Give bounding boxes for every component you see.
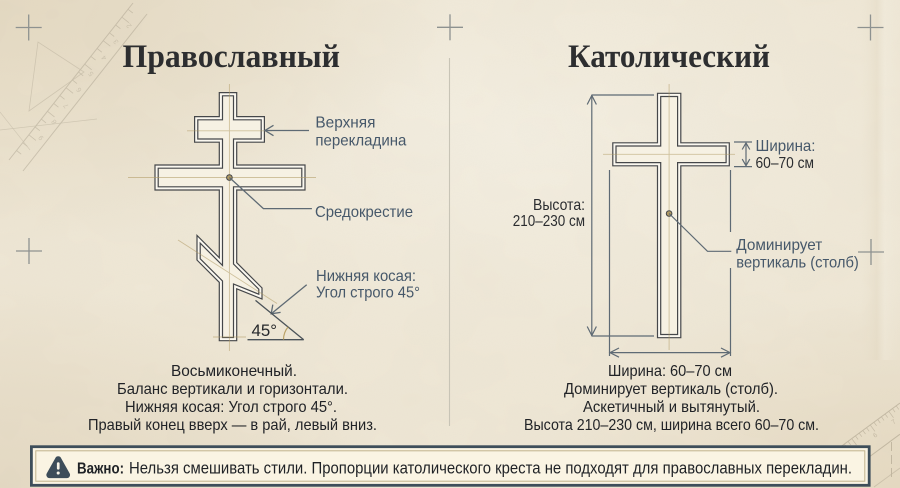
svg-text:перекладина: перекладина bbox=[315, 132, 406, 149]
svg-text:Восьмиконечный.: Восьмиконечный. bbox=[171, 363, 297, 380]
svg-text:Доминирует вертикаль (столб).: Доминирует вертикаль (столб). bbox=[564, 381, 778, 398]
svg-text:Католический: Католический bbox=[568, 39, 770, 75]
svg-text:45°: 45° bbox=[252, 321, 278, 340]
svg-text:Высота 210–230 см, ширина всег: Высота 210–230 см, ширина всего 60–70 см… bbox=[524, 417, 819, 434]
svg-text:Правый конец вверх — в рай, ле: Правый конец вверх — в рай, левый вниз. bbox=[88, 417, 377, 434]
svg-text:Баланс вертикали и горизонтали: Баланс вертикали и горизонтали. bbox=[117, 381, 348, 398]
svg-text:Ширина:: Ширина: bbox=[756, 138, 816, 155]
svg-text:Важно:: Важно: bbox=[77, 460, 124, 477]
svg-text:Доминирует: Доминирует bbox=[736, 237, 823, 254]
svg-text:Средокрестие: Средокрестие bbox=[315, 204, 413, 221]
svg-text:Ширина: 60–70 см: Ширина: 60–70 см bbox=[608, 363, 732, 380]
svg-text:вертикаль (столб): вертикаль (столб) bbox=[736, 255, 859, 272]
svg-text:Нельзя смешивать стили. Пропор: Нельзя смешивать стили. Пропорции католи… bbox=[129, 459, 852, 477]
svg-text:Высота:: Высота: bbox=[533, 197, 585, 214]
svg-text:Верхняя: Верхняя bbox=[315, 115, 375, 132]
svg-text:Православный: Православный bbox=[123, 39, 341, 75]
svg-text:Аскетичный и вытянутый.: Аскетичный и вытянутый. bbox=[583, 399, 760, 416]
svg-text:Нижняя косая:: Нижняя косая: bbox=[316, 268, 416, 285]
svg-text:210–230 см: 210–230 см bbox=[513, 213, 585, 230]
svg-text:Угол строго 45°: Угол строго 45° bbox=[316, 285, 420, 302]
svg-text:Нижняя косая: Угол строго 45°.: Нижняя косая: Угол строго 45°. bbox=[125, 399, 337, 416]
svg-text:60–70 см: 60–70 см bbox=[756, 155, 815, 172]
